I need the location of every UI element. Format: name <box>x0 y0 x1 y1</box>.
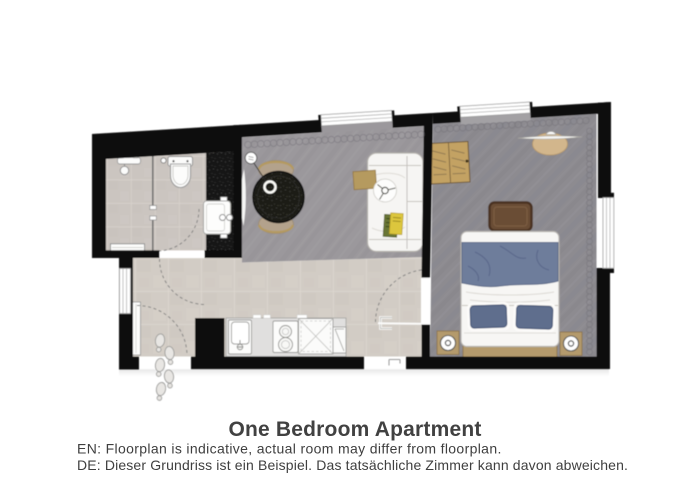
svg-text:One Bedroom Apartment: One Bedroom Apartment <box>228 418 481 441</box>
svg-text:DE: Dieser Grundriss ist ein B: DE: Dieser Grundriss ist ein Beispiel. D… <box>77 457 628 473</box>
svg-text:EN: Floorplan is indicative, a: EN: Floorplan is indicative, actual room… <box>77 441 502 457</box>
